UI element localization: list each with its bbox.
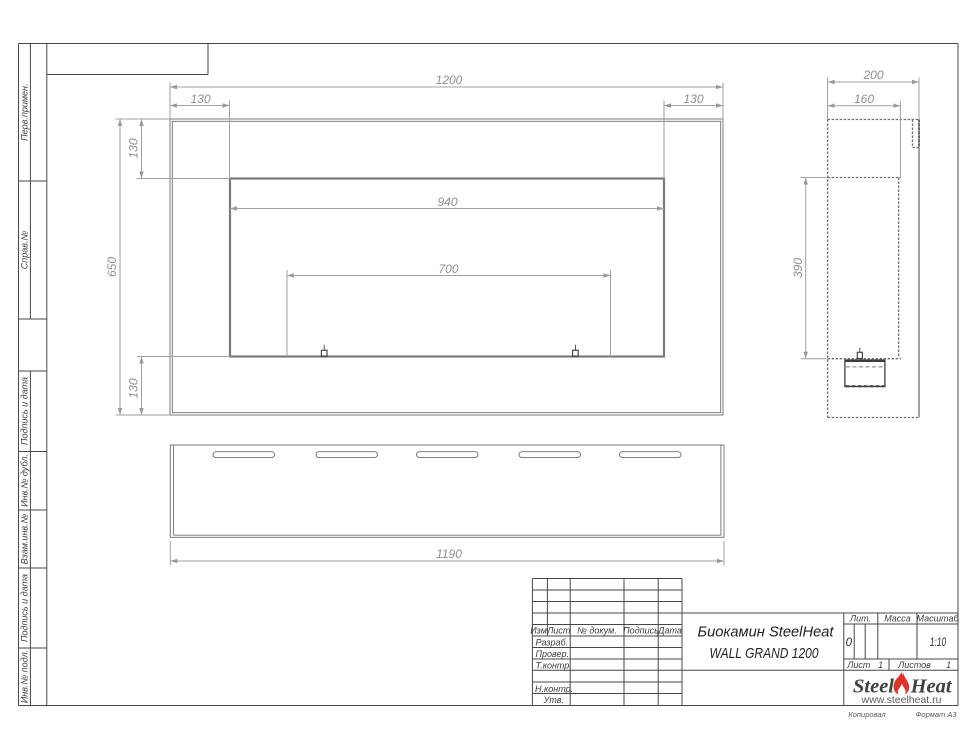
svg-text:Н.контр.: Н.контр.: [535, 684, 573, 694]
svg-text:1: 1: [878, 660, 883, 670]
svg-text:Лист: Лист: [546, 626, 571, 636]
svg-text:Подпись и дата: Подпись и дата: [20, 574, 30, 642]
svg-text:Перв.примен.: Перв.примен.: [20, 84, 30, 141]
svg-text:Масса: Масса: [884, 614, 911, 624]
svg-text:130: 130: [127, 138, 141, 158]
svg-text:Дата: Дата: [657, 626, 682, 636]
svg-text:Утв.: Утв.: [543, 695, 564, 705]
svg-text:Инв.№ дубл.: Инв.№ дубл.: [20, 454, 30, 507]
svg-text:Инв.№ подл.: Инв.№ подл.: [20, 650, 30, 703]
svg-text:Копировал: Копировал: [848, 710, 886, 719]
svg-text:Взам.инв.№: Взам.инв.№: [20, 513, 30, 564]
svg-text:www.steelheat.ru: www.steelheat.ru: [861, 694, 942, 706]
svg-text:WALL GRAND 1200: WALL GRAND 1200: [710, 645, 820, 662]
svg-text:Провер.: Провер.: [536, 649, 570, 659]
svg-text:1190: 1190: [436, 547, 462, 561]
svg-text:Лист: Лист: [846, 660, 871, 670]
svg-text:Т.контр.: Т.контр.: [536, 661, 572, 671]
svg-text:200: 200: [862, 68, 883, 82]
svg-text:Подпись: Подпись: [623, 626, 659, 636]
svg-text:Биокамин SteelHeat: Биокамин SteelHeat: [698, 624, 835, 641]
svg-text:Подпись и дата: Подпись и дата: [20, 377, 30, 445]
svg-text:160: 160: [854, 92, 874, 106]
svg-text:№ докум.: № докум.: [577, 626, 617, 636]
svg-text:130: 130: [190, 92, 210, 106]
svg-text:1200: 1200: [436, 73, 463, 87]
svg-text:0: 0: [846, 637, 853, 649]
svg-text:Разраб.: Разраб.: [536, 638, 569, 648]
svg-text:1: 1: [946, 660, 951, 670]
svg-text:Лит.: Лит.: [849, 614, 871, 624]
svg-text:700: 700: [438, 262, 458, 276]
svg-text:130: 130: [683, 92, 703, 106]
svg-text:Справ.№: Справ.№: [20, 231, 30, 270]
svg-text:650: 650: [105, 257, 119, 277]
svg-text:1:10: 1:10: [930, 637, 947, 649]
svg-text:390: 390: [791, 258, 805, 278]
svg-text:Формат А3: Формат А3: [915, 710, 957, 719]
svg-text:Листов: Листов: [897, 660, 931, 670]
svg-text:940: 940: [437, 195, 457, 209]
svg-text:Масштаб: Масштаб: [916, 614, 959, 624]
svg-text:130: 130: [127, 378, 141, 398]
